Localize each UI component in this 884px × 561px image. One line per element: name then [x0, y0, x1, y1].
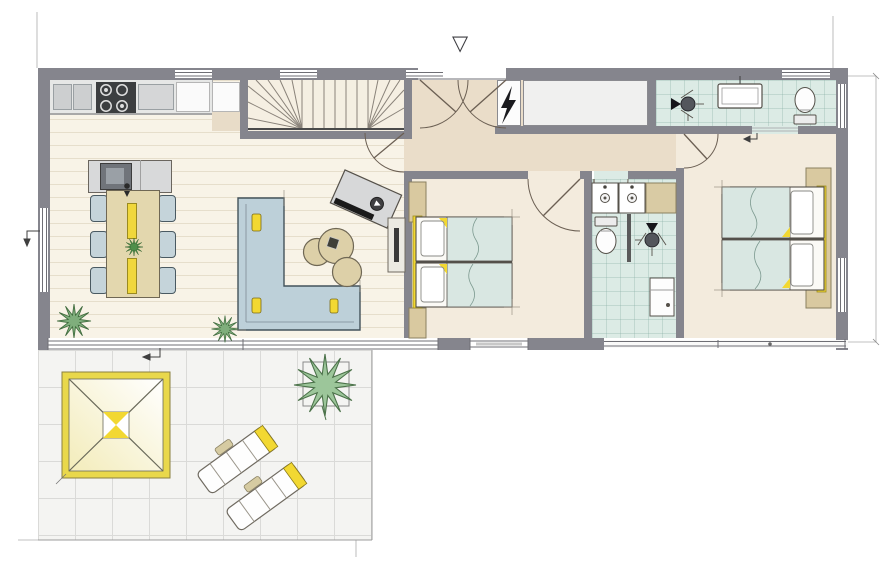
table-plant [125, 238, 143, 256]
bed-pair-bedroom1 [409, 182, 520, 338]
radiator [718, 84, 762, 108]
bed-pair-bedroom2 [714, 168, 831, 308]
pergola [56, 372, 170, 484]
stairs [248, 80, 404, 129]
shower [635, 223, 666, 256]
electrical-panel-icon [501, 86, 516, 124]
shower [671, 90, 704, 121]
toilet [595, 217, 617, 254]
potted-plant [212, 316, 239, 343]
toilet [794, 88, 816, 125]
plan-linework [0, 0, 884, 561]
cooktop-burners [101, 85, 127, 111]
planter-shrub [294, 354, 356, 420]
floor-plan: ▽ [0, 0, 884, 561]
island-faucet [50, 114, 212, 198]
potted-plant [57, 304, 91, 338]
sideboard [388, 218, 405, 272]
coffee-table-set [304, 229, 362, 287]
